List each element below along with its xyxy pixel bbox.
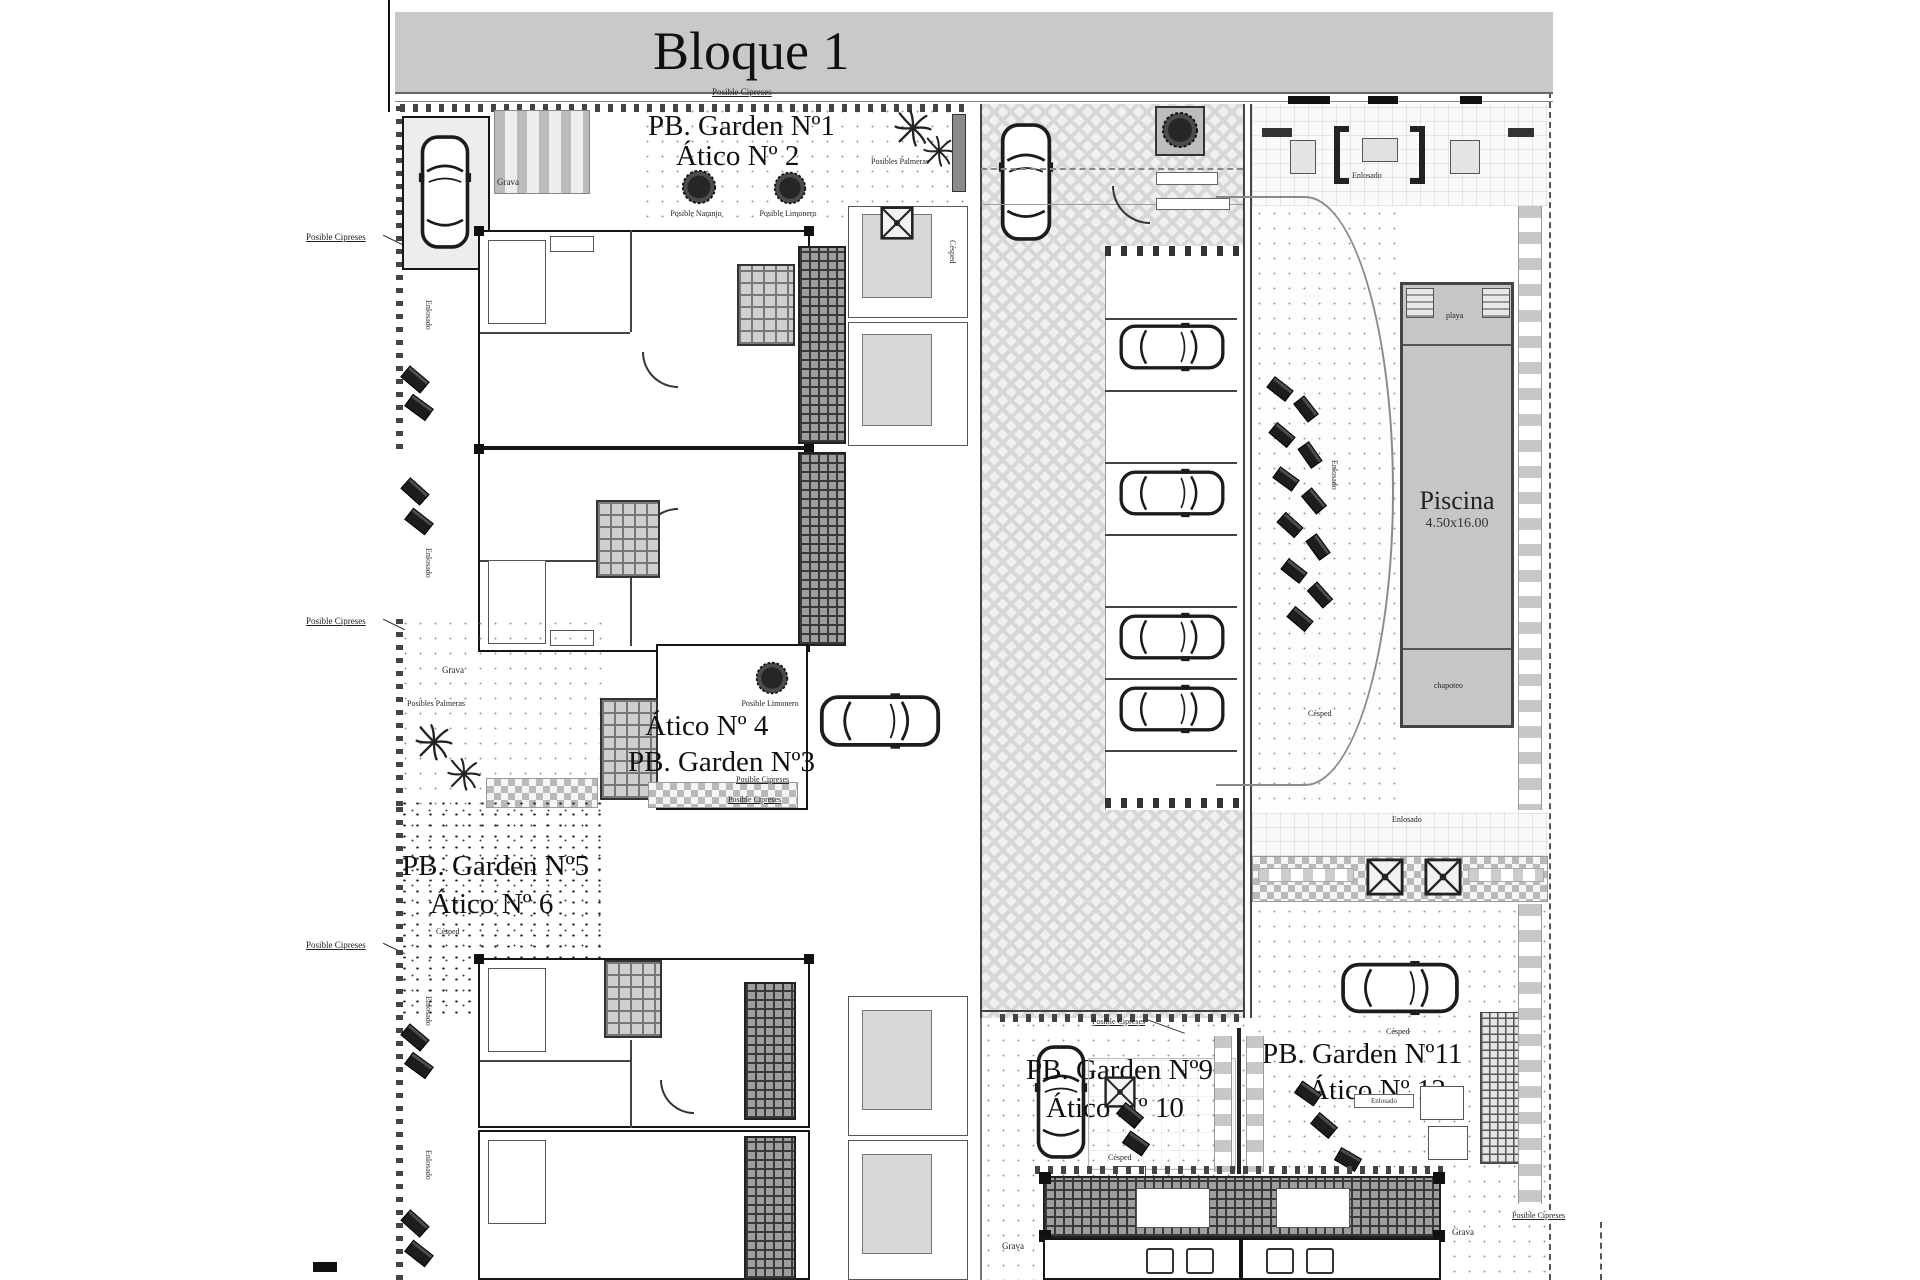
entry-patio (737, 264, 795, 346)
stepping-stones (1258, 868, 1354, 882)
armchair (1266, 1248, 1294, 1274)
parasol-icon (880, 206, 914, 240)
terrace-pergola (798, 246, 846, 444)
unit-label: Ático Nº 2 (676, 142, 799, 171)
bed (488, 1140, 546, 1224)
stepping-stones (1518, 206, 1542, 810)
label-cesped: Césped (948, 240, 957, 264)
unit-label: PB. Garden Nº1 (648, 112, 835, 141)
label-enlosado: Enlosado (1392, 816, 1422, 825)
label-enlosado: Enlosado (424, 300, 433, 330)
label-palmeras: Posibles Palmeras (404, 700, 468, 709)
boundary-dashed-corner (1600, 1222, 1602, 1280)
lawn-curve (1216, 196, 1394, 786)
label-cesped: Césped (1386, 1028, 1410, 1037)
parasol-icon (1424, 858, 1462, 896)
fence-tick (1288, 96, 1330, 104)
small-label-box (1156, 172, 1218, 185)
unit-label: PB. Garden Nº3 (628, 748, 815, 777)
armchair (1306, 1248, 1334, 1274)
tree-icon (754, 660, 790, 696)
pillar (1039, 1172, 1051, 1184)
dining-table (1276, 1188, 1350, 1228)
lounger-icon (404, 394, 434, 421)
parasol-icon (1366, 858, 1404, 896)
label-cesped: Césped (1308, 710, 1332, 719)
car-icon (998, 116, 1054, 248)
gate-line (981, 168, 1243, 170)
lounger-icon (404, 1052, 434, 1079)
pool-steps (1482, 288, 1510, 318)
stepping-stones (1246, 1036, 1264, 1172)
small-label-box: Enlosado (1354, 1094, 1414, 1108)
room-wall (480, 1060, 630, 1062)
bench (1290, 140, 1316, 174)
terrace-pergola (744, 982, 796, 1120)
bench (1262, 128, 1292, 137)
car-icon (818, 692, 942, 750)
roof-pergola (1043, 1176, 1441, 1238)
pillar (474, 444, 484, 454)
label-enlosado: Enlosado (424, 1150, 433, 1180)
pillar (474, 226, 484, 236)
label-cesped: Césped (1108, 1154, 1132, 1163)
pergola-bracket (1410, 126, 1425, 184)
closet (550, 236, 594, 252)
stepping-stones (1214, 1036, 1232, 1172)
pillar (804, 954, 814, 964)
entry-patio (596, 500, 660, 578)
label-posible-cipreses: Posible Cipreses (306, 617, 366, 627)
entry-patio (604, 960, 662, 1038)
driveway-edge (980, 104, 982, 1018)
label-cesped: Césped (436, 928, 460, 937)
pool-name: Piscina (1402, 486, 1512, 516)
label-posible-cipreses: Posible Cipreses (306, 941, 366, 951)
pool-divider (1403, 648, 1511, 650)
label-grava: Grava (1452, 1228, 1474, 1238)
label-enlosado: Enlosado (424, 996, 433, 1026)
tree-icon (1160, 110, 1200, 150)
fence-tick (1460, 96, 1482, 104)
bed (488, 968, 546, 1052)
unit-label: PB. Garden Nº5 (402, 852, 589, 881)
terrace-pergola (744, 1136, 796, 1280)
label-posible-cipreses: Posible Cipreses (306, 233, 366, 243)
tree-icon (680, 168, 718, 206)
title-bar: Bloque 1 (395, 12, 1553, 94)
armchair (1186, 1248, 1214, 1274)
hedge (396, 616, 403, 806)
path-wall (1237, 1028, 1241, 1174)
frame-corner-mark (313, 1262, 337, 1272)
zone-edge (980, 1018, 982, 1280)
room-wall (630, 230, 632, 332)
label-posible-cipreses: Posible Cipreses (736, 776, 789, 785)
table (1420, 1086, 1464, 1120)
terrace-pergola (798, 452, 846, 646)
bed (488, 240, 546, 324)
lounger-icon (400, 365, 430, 393)
label-grava: Grava (442, 666, 464, 676)
planter (952, 114, 966, 192)
room-wall (630, 566, 632, 646)
lounger-icon (404, 1240, 434, 1268)
party-wall (1239, 1238, 1243, 1280)
label-enlosado: Enlosado (1352, 172, 1382, 181)
plan-title: Bloque 1 (653, 20, 850, 82)
bench (1362, 138, 1398, 162)
lounger-icon (400, 477, 429, 506)
boundary-dashed-right (1549, 92, 1551, 1280)
label-grava: Grava (497, 178, 519, 188)
pillar (804, 226, 814, 236)
tree-icon (772, 170, 808, 206)
label-posible-cipreses: Posible Cipreses (712, 88, 772, 98)
unit-label: Ático Nº 4 (645, 712, 768, 741)
driveway-end-line (981, 1010, 1243, 1012)
label-limonero: Posible Limonero (756, 210, 820, 219)
label-posible-cipreses: Posible Cipreses (1512, 1212, 1565, 1221)
label-naranjo: Posible Naranjo (664, 210, 728, 219)
pool-dimensions: 4.50x16.00 (1402, 516, 1512, 532)
room-wall (480, 332, 630, 334)
pergola-bracket (1334, 126, 1349, 184)
pillar (474, 954, 484, 964)
fence-tick (1368, 96, 1398, 104)
armchair (1146, 1248, 1174, 1274)
frame-line (388, 0, 390, 112)
lounger-icon (400, 1023, 430, 1051)
label-palmeras: Posibles Palmeras (868, 158, 932, 167)
pillar (1433, 1172, 1445, 1184)
pool-steps (1406, 288, 1434, 318)
table (1428, 1126, 1468, 1160)
lounger-icon (400, 1209, 429, 1238)
patio-paving (862, 1010, 932, 1110)
patio-paving (862, 1154, 932, 1254)
fence (1035, 1166, 1449, 1174)
pool-chapoteo-label: chapoteo (1434, 682, 1463, 691)
patio-paving (862, 334, 932, 426)
label-grava: Grava (1002, 1242, 1024, 1252)
pool-divider (1403, 344, 1511, 346)
site-plan: Posible Cipreses Posible Cipreses Posibl… (0, 0, 1920, 1280)
palm-icon (446, 756, 482, 792)
bench (1450, 140, 1480, 174)
lounger-icon (404, 508, 434, 536)
pool-playa-label: playa (1446, 312, 1463, 321)
room-wall (630, 1040, 632, 1128)
label-enlosado: Enlosado (1330, 460, 1339, 490)
unit-label: PB. Garden Nº11 (1262, 1040, 1462, 1069)
stepping-stones (1518, 904, 1542, 1204)
unit-label: Ático Nº 6 (430, 890, 553, 919)
stepping-stones (1468, 868, 1544, 882)
car-icon (418, 128, 472, 256)
label-enlosado: Enlosado (424, 548, 433, 578)
car-icon (1338, 960, 1462, 1016)
dining-table (1136, 1188, 1210, 1228)
label-limonero: Posible Limonero (738, 700, 802, 709)
bench (1508, 128, 1534, 137)
parasol-icon (1104, 1076, 1136, 1108)
parking-edge-dots (1105, 798, 1243, 808)
label-posible-cipreses: Posible Cipreses (728, 796, 781, 805)
